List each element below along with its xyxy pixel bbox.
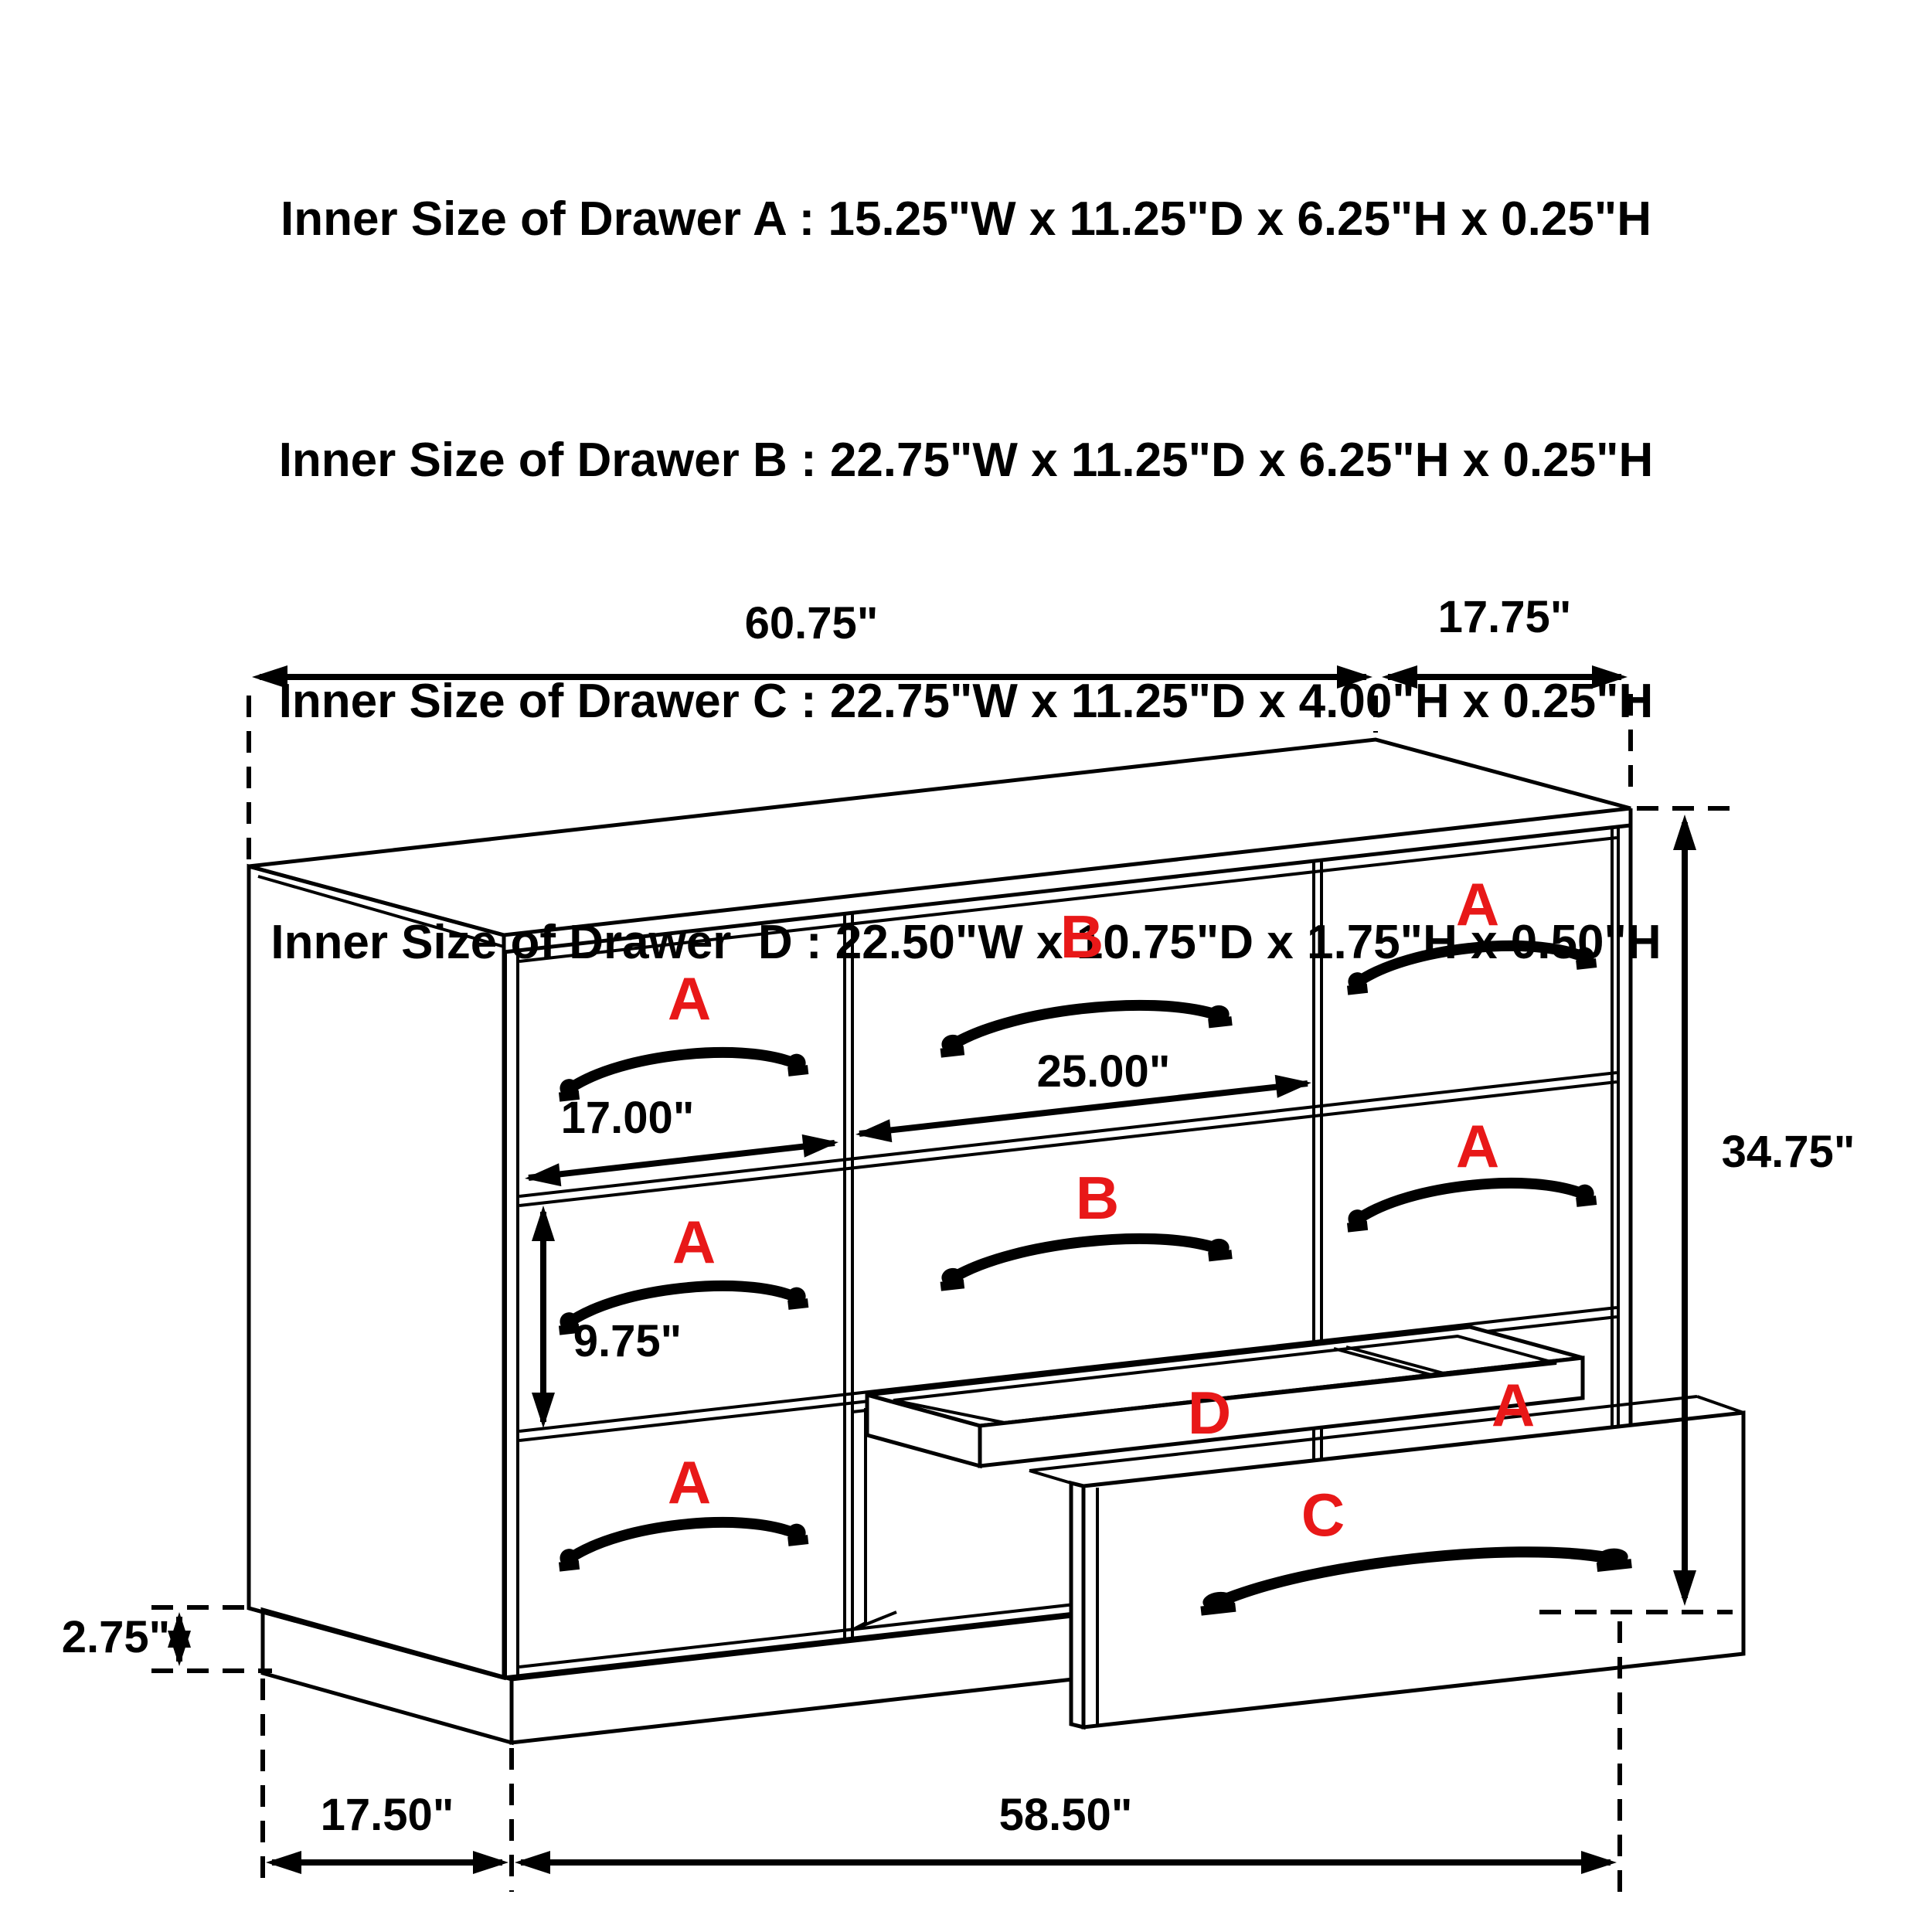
drawer-label-a: A bbox=[1492, 1371, 1535, 1439]
drawer-handle-icon bbox=[1345, 934, 1597, 995]
drawer-handle-icon bbox=[1345, 1172, 1597, 1232]
base-side-face bbox=[263, 1610, 512, 1743]
dresser-top-surface bbox=[249, 740, 1631, 935]
dim-base-height: 2.75" bbox=[62, 1607, 272, 1671]
drawer-label-a: A bbox=[672, 1208, 716, 1276]
drawer-label-b: B bbox=[1076, 1164, 1119, 1232]
dim-top-width: 60.75" bbox=[249, 598, 1376, 859]
dim-label-top-depth: 17.75" bbox=[1438, 592, 1572, 642]
drawer-label-a: A bbox=[1456, 1112, 1499, 1180]
drawer-handle-icon bbox=[556, 1511, 809, 1571]
dim-label-top-width: 60.75" bbox=[745, 598, 879, 648]
drawer-label-b: B bbox=[1060, 903, 1104, 971]
dresser-dimension-diagram: A A A B B A A A D C 60.75" bbox=[0, 0, 1932, 1932]
dim-label-bottom-depth: 17.50" bbox=[321, 1790, 454, 1840]
dim-drawer-a-height: 9.75" bbox=[532, 1206, 682, 1428]
dim-label-drawer-a-height: 9.75" bbox=[573, 1316, 682, 1366]
drawer-label-a: A bbox=[1456, 870, 1499, 938]
dim-label-bottom-width: 58.50" bbox=[999, 1790, 1133, 1840]
drawer-c-face bbox=[1083, 1413, 1743, 1727]
left-side-panel bbox=[249, 866, 504, 1678]
dim-label-overall-height: 34.75" bbox=[1722, 1127, 1855, 1177]
dim-label-base-height: 2.75" bbox=[62, 1612, 170, 1662]
dim-label-drawer-b-width: 25.00" bbox=[1037, 1046, 1171, 1097]
drawer-label-a: A bbox=[668, 964, 711, 1032]
drawer-handle-icon bbox=[937, 1226, 1233, 1291]
drawer-label-c: C bbox=[1301, 1481, 1345, 1549]
drawer-label-d: D bbox=[1188, 1379, 1231, 1447]
dim-drawer-b-width: 25.00" bbox=[854, 1046, 1312, 1146]
dim-label-drawer-a-width: 17.00" bbox=[561, 1093, 695, 1143]
drawer-label-a: A bbox=[668, 1448, 711, 1516]
diagram-page: Inner Size of Drawer A : 15.25"W x 11.25… bbox=[0, 0, 1932, 1932]
dim-top-depth: 17.75" bbox=[1382, 592, 1631, 801]
